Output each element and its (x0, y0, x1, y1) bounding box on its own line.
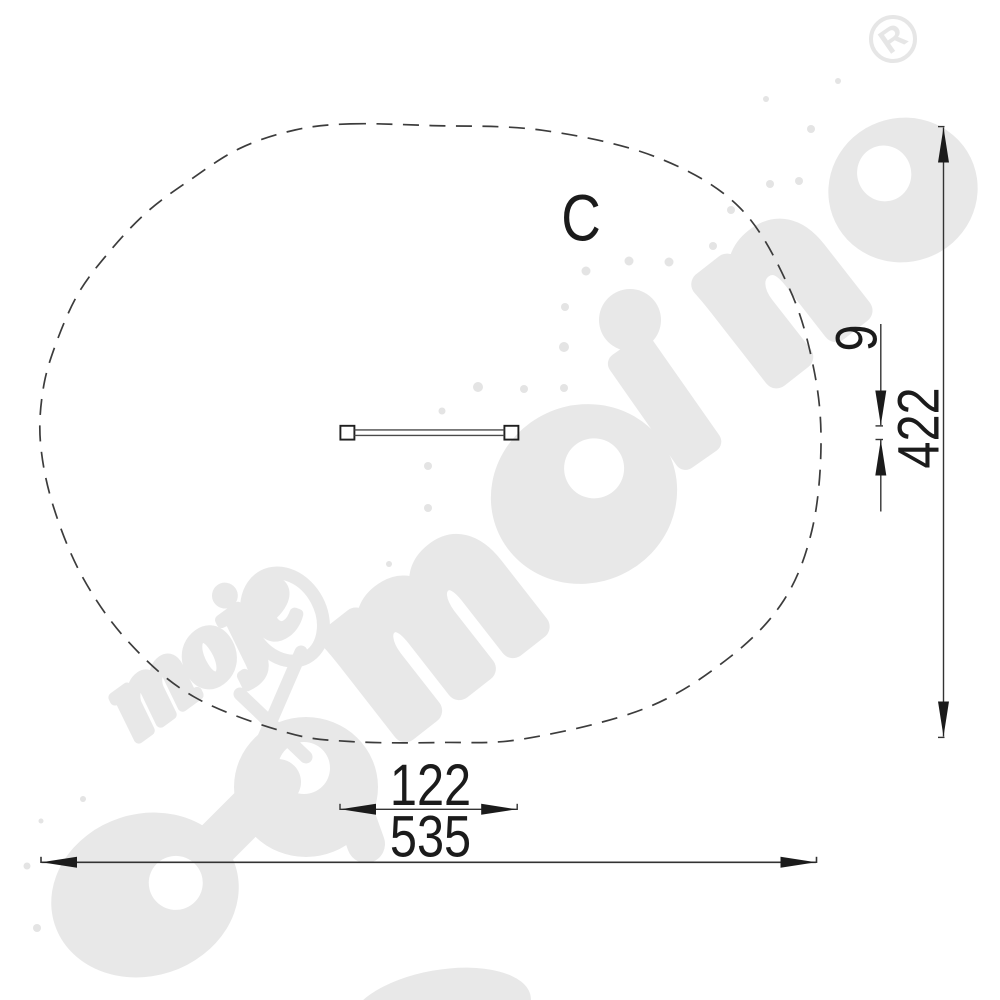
svg-text:422: 422 (888, 387, 952, 468)
svg-text:535: 535 (390, 806, 471, 870)
svg-text:9: 9 (826, 324, 890, 351)
svg-text:C: C (561, 181, 601, 255)
